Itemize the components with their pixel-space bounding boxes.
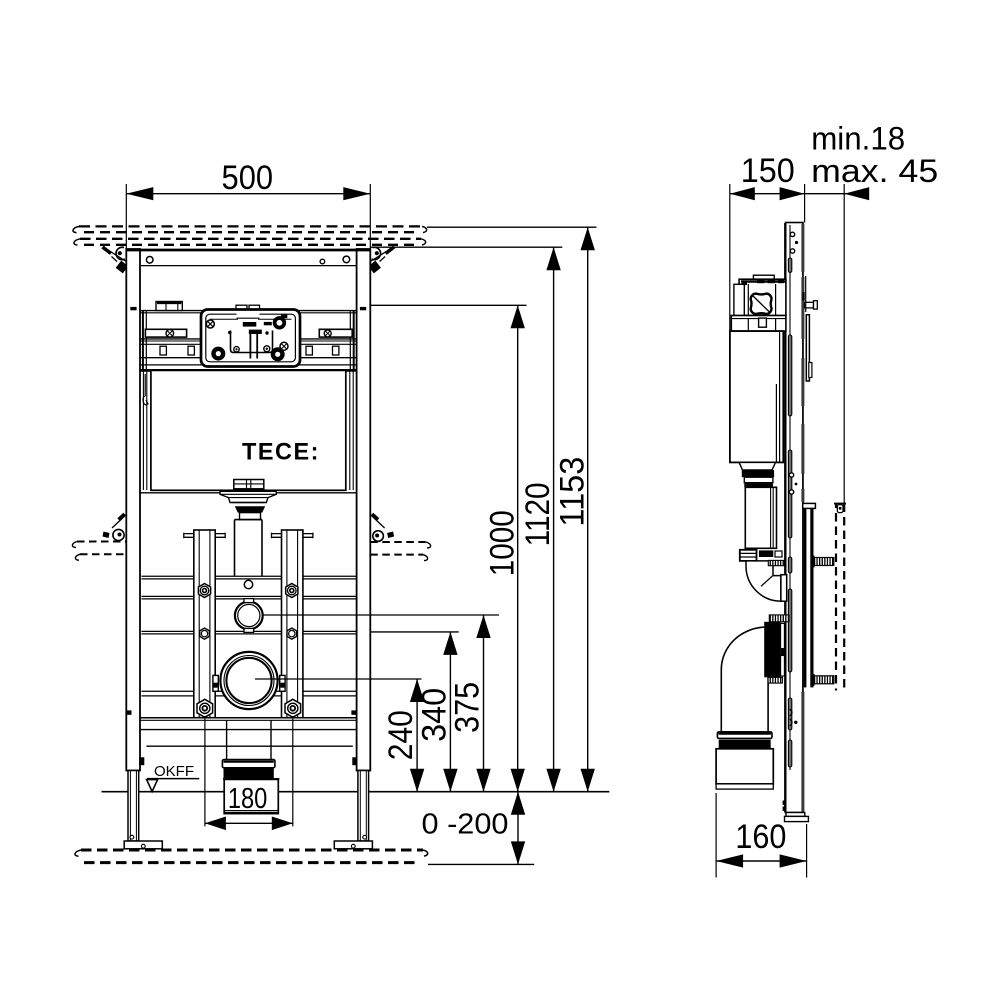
svg-text:375: 375 [449, 682, 487, 733]
svg-text:0 -200: 0 -200 [422, 809, 509, 841]
svg-text:1153: 1153 [554, 457, 592, 527]
svg-text:1000: 1000 [484, 510, 522, 576]
svg-text:OKFF: OKFF [154, 763, 194, 780]
svg-text:340: 340 [415, 688, 453, 742]
svg-text:1120: 1120 [519, 482, 557, 546]
svg-text:500: 500 [222, 159, 274, 197]
svg-text:150: 150 [741, 152, 795, 190]
svg-text:max. 45: max. 45 [811, 153, 938, 189]
svg-text:TECE:: TECE: [242, 439, 320, 466]
svg-text:160: 160 [735, 818, 786, 856]
svg-text:min.18: min.18 [811, 120, 905, 156]
svg-text:180: 180 [228, 783, 268, 815]
